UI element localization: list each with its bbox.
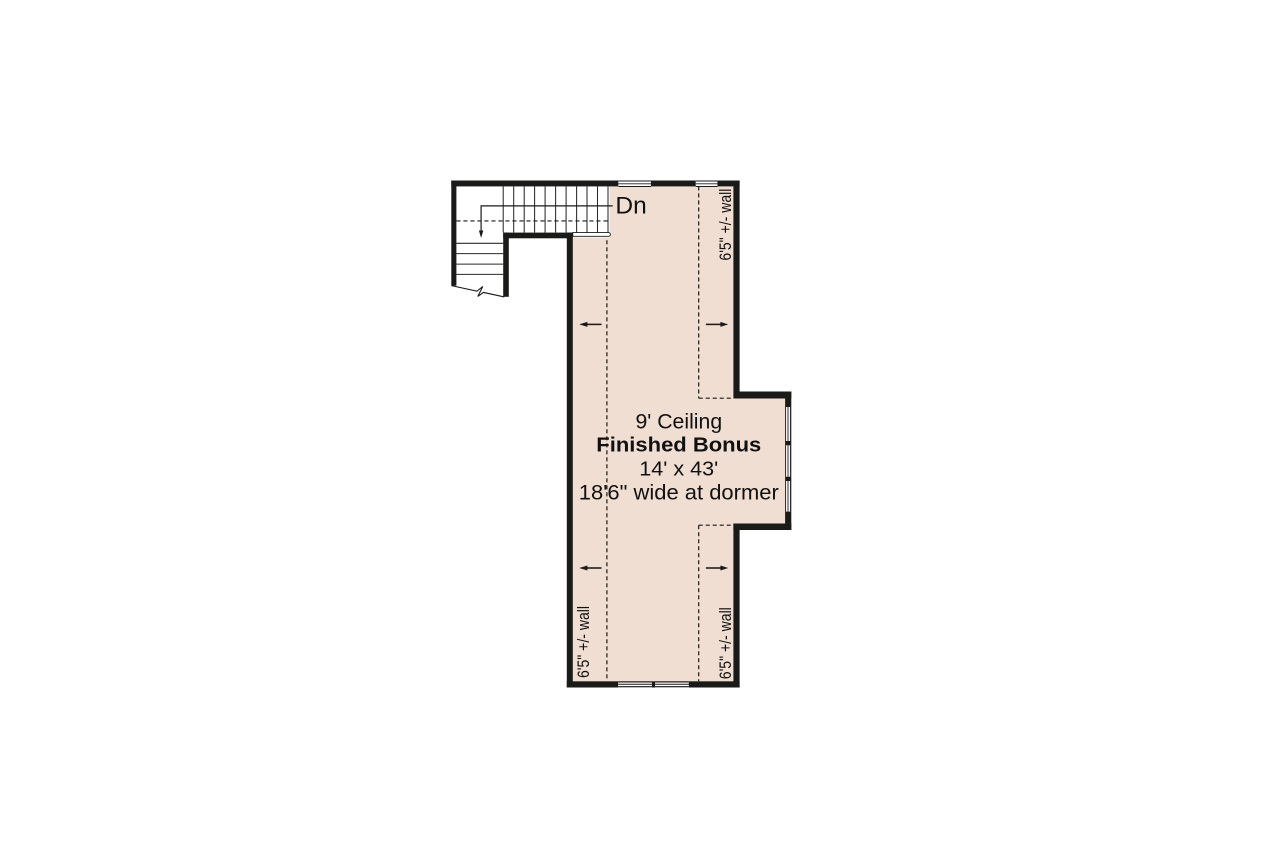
svg-text:6'5" +/- wall: 6'5" +/- wall bbox=[574, 606, 593, 678]
svg-text:Finished Bonus: Finished Bonus bbox=[596, 433, 761, 456]
svg-text:6'5" +/- wall: 6'5" +/- wall bbox=[716, 189, 735, 261]
svg-text:18'6" wide at dormer: 18'6" wide at dormer bbox=[579, 481, 779, 504]
svg-text:14' x 43': 14' x 43' bbox=[639, 459, 718, 481]
svg-text:9' Ceiling: 9' Ceiling bbox=[635, 410, 722, 433]
svg-text:6'5" +/- wall: 6'5" +/- wall bbox=[716, 607, 735, 679]
svg-text:Dn: Dn bbox=[615, 193, 646, 220]
